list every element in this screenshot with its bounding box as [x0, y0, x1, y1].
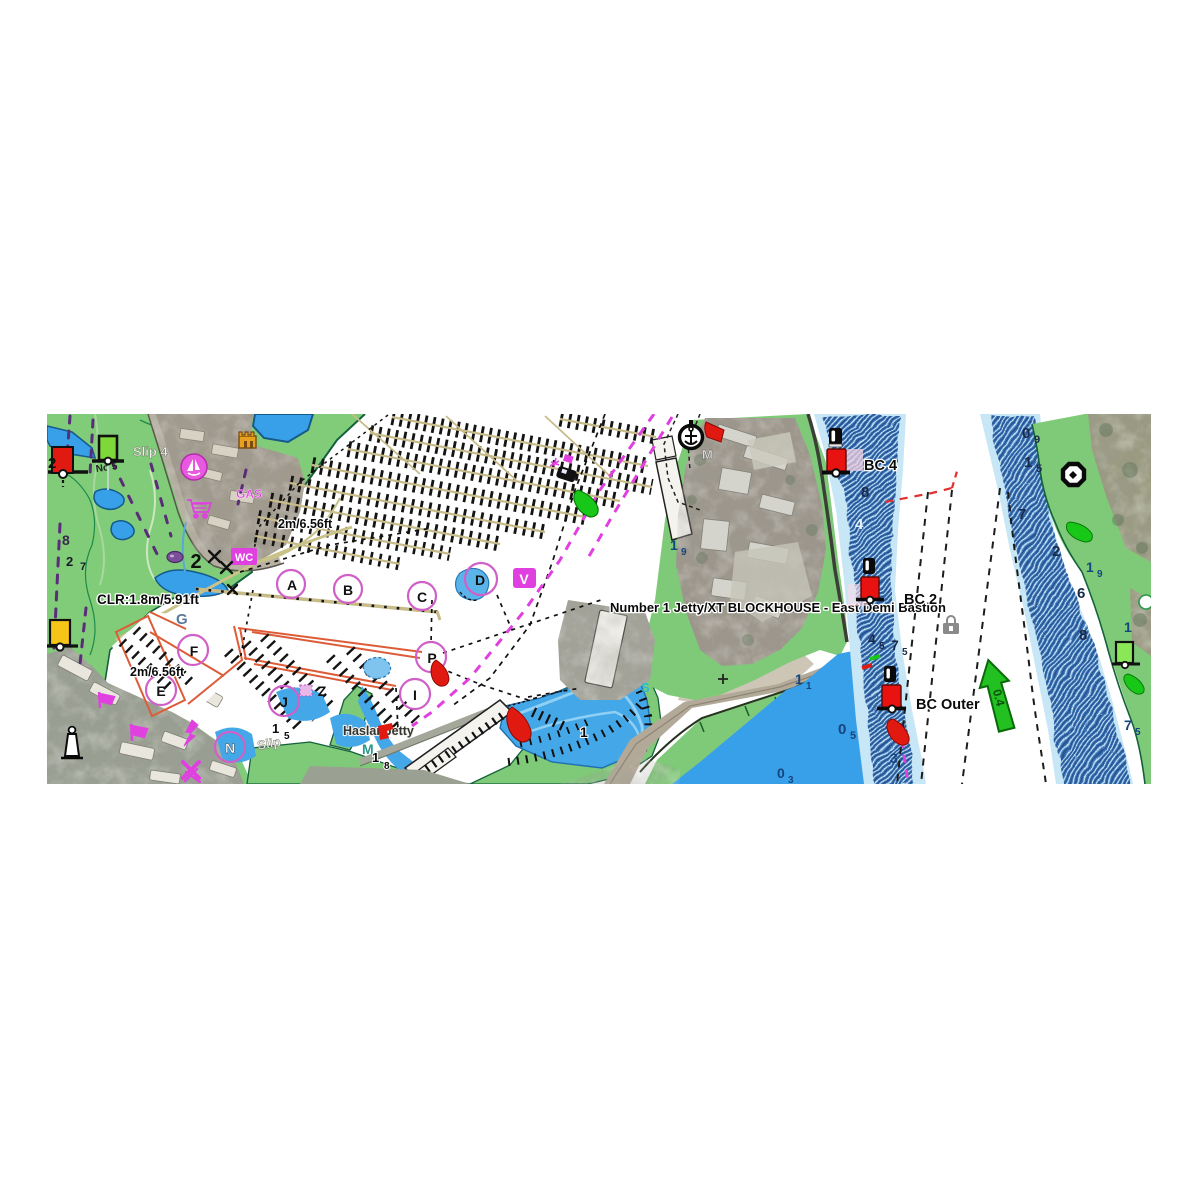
svg-text:Z: Z: [318, 683, 327, 699]
svg-text:1: 1: [1086, 559, 1094, 575]
svg-text:2m/6.56ft: 2m/6.56ft: [130, 665, 185, 679]
svg-text:5: 5: [850, 730, 856, 742]
svg-text:1: 1: [1024, 454, 1032, 471]
svg-text:BC 4: BC 4: [864, 458, 897, 474]
svg-text:C: C: [417, 589, 427, 605]
svg-text:J: J: [280, 694, 288, 710]
svg-text:F: F: [190, 643, 199, 659]
svg-text:8: 8: [1079, 627, 1087, 644]
svg-text:8: 8: [861, 484, 869, 501]
svg-text:V: V: [519, 571, 529, 587]
svg-text:0: 0: [1022, 425, 1030, 442]
svg-text:E: E: [156, 683, 165, 699]
svg-text:6: 6: [1077, 585, 1085, 602]
svg-text:7: 7: [1018, 506, 1026, 523]
svg-text:2: 2: [66, 554, 73, 569]
svg-text:2: 2: [1052, 543, 1060, 560]
svg-text:2m/6.56ft: 2m/6.56ft: [278, 517, 333, 531]
svg-text:3: 3: [890, 750, 898, 766]
svg-text:D: D: [475, 572, 485, 588]
svg-text:9: 9: [681, 547, 687, 558]
svg-text:5: 5: [902, 647, 908, 658]
svg-text:2: 2: [190, 551, 201, 573]
svg-text:GAS: GAS: [236, 487, 262, 501]
svg-text:S: S: [641, 680, 650, 695]
svg-text:Slip 4: Slip 4: [133, 444, 168, 459]
svg-text:1: 1: [670, 537, 678, 553]
svg-text:Number 1 Jetty/XT BLOCKHOUSE -: Number 1 Jetty/XT BLOCKHOUSE - East Demi…: [610, 600, 946, 615]
svg-text:0: 0: [838, 721, 846, 738]
svg-text:1: 1: [795, 671, 803, 687]
svg-text:8: 8: [62, 532, 70, 548]
svg-text:I: I: [413, 687, 417, 703]
svg-text:7: 7: [80, 561, 86, 573]
svg-text:5: 5: [1135, 727, 1141, 738]
svg-text:9: 9: [1034, 434, 1040, 446]
svg-text:1: 1: [272, 721, 279, 736]
svg-text:M: M: [702, 447, 713, 462]
svg-text:A: A: [287, 577, 297, 593]
svg-text:WC: WC: [235, 552, 253, 564]
svg-text:8: 8: [384, 761, 390, 772]
svg-text:9: 9: [1097, 569, 1103, 580]
svg-text:0: 0: [777, 765, 785, 781]
svg-text:BC Outer: BC Outer: [916, 697, 980, 713]
svg-text:N: N: [225, 740, 235, 756]
svg-text:5: 5: [1036, 463, 1042, 475]
svg-text:G: G: [176, 611, 188, 628]
svg-text:7: 7: [891, 637, 899, 653]
svg-text:5: 5: [879, 641, 885, 652]
svg-text:2: 2: [48, 455, 56, 472]
svg-text:1: 1: [806, 681, 812, 692]
svg-text:4: 4: [855, 516, 864, 533]
svg-text:B: B: [343, 582, 353, 598]
svg-text:1: 1: [1124, 619, 1132, 635]
svg-text:BC 2: BC 2: [904, 592, 937, 608]
svg-text:7: 7: [1124, 717, 1132, 733]
svg-text:1: 1: [580, 724, 588, 740]
svg-text:CLR:1.8m/5.91ft: CLR:1.8m/5.91ft: [97, 592, 200, 607]
svg-text:4: 4: [868, 631, 876, 647]
svg-text:5: 5: [284, 731, 290, 742]
svg-text:1: 1: [372, 750, 379, 765]
